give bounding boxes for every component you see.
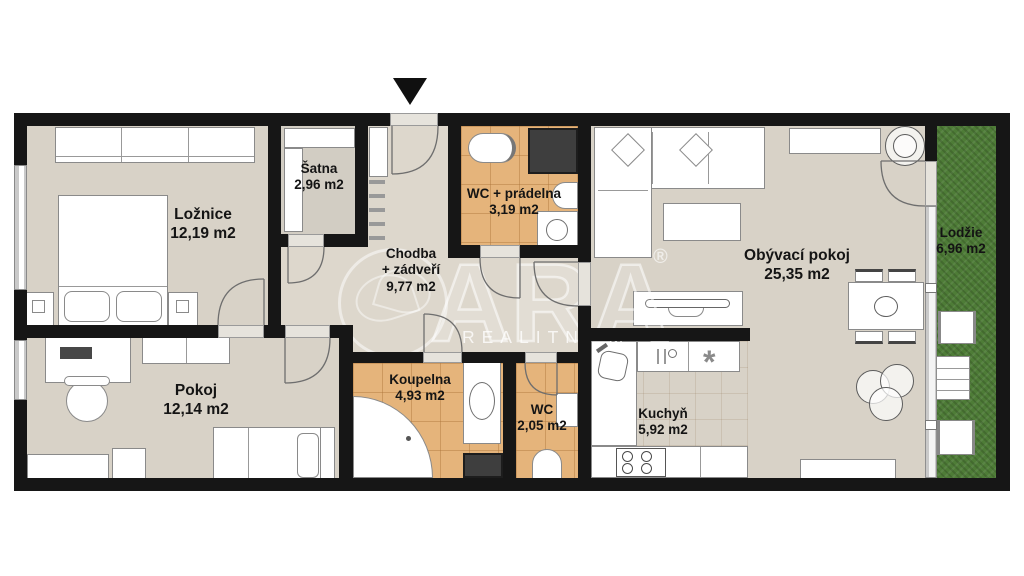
bathtub-faucet-icon	[406, 436, 411, 441]
room-label-wc: WC 2,05 m2	[517, 402, 567, 435]
coat-hook	[369, 194, 385, 198]
cutlery-icon	[664, 349, 666, 364]
wall	[268, 126, 281, 338]
wardrobe	[55, 127, 255, 163]
room-label-satna: Šatna 2,96 m2	[294, 161, 344, 194]
cutlery-icon	[657, 349, 659, 364]
sideboard	[789, 128, 881, 154]
room-name: WC	[517, 402, 567, 418]
room-label-kuchyn: Kuchyň 5,92 m2	[638, 406, 688, 439]
room-name: Lodžie	[936, 225, 986, 241]
room-area: 5,92 m2	[638, 422, 688, 438]
coat-hook	[369, 208, 385, 212]
door-threshold	[525, 352, 557, 363]
room-name: Kuchyň	[638, 406, 688, 422]
coat-hook	[369, 180, 385, 184]
duvet-fold	[248, 428, 249, 483]
wall	[353, 352, 423, 363]
room-name: Koupelna	[389, 372, 451, 388]
bedside-lamp-icon	[32, 300, 45, 313]
utility-shaft	[463, 453, 503, 478]
window-handle	[925, 283, 937, 293]
room-label-pokoj: Pokoj 12,14 m2	[163, 382, 229, 420]
tv	[645, 299, 730, 308]
dining-chair	[888, 331, 916, 344]
window	[14, 340, 27, 400]
coat-hook	[369, 222, 385, 226]
room-area: 2,05 m2	[517, 418, 567, 434]
wall	[462, 352, 525, 363]
wall	[14, 478, 1010, 491]
door-threshold	[288, 234, 324, 247]
wall	[503, 363, 516, 478]
coat-hook	[369, 236, 385, 240]
closet-shelf	[284, 128, 355, 148]
room-label-koupelna: Koupelna 4,93 m2	[389, 372, 451, 405]
room-name: Šatna	[294, 161, 344, 177]
room-area: 12,19 m2	[170, 225, 236, 244]
table-plant	[874, 296, 898, 317]
glass-icon	[668, 349, 677, 358]
bed-headboard	[320, 427, 335, 484]
room-name: + zádveří	[382, 262, 440, 278]
tv-stand	[668, 308, 704, 317]
coffee-table	[663, 203, 741, 241]
sofa-cushion-line	[708, 132, 709, 184]
door-threshold	[480, 245, 520, 258]
entrance-door-threshold	[390, 113, 438, 126]
wall	[578, 341, 591, 478]
door-threshold	[925, 161, 937, 206]
sofa-cushion-line	[652, 132, 653, 184]
plant	[893, 134, 917, 158]
room-name: WC + prádelna	[467, 186, 561, 202]
wall	[355, 126, 368, 247]
floor-plant	[869, 387, 903, 421]
floor-plan: * ARA ® REALITNÍ	[0, 0, 1024, 576]
door-threshold	[423, 352, 462, 363]
hall-cabinet	[369, 127, 388, 177]
fan-icon: *	[703, 346, 715, 378]
dining-chair	[888, 269, 916, 282]
door-threshold	[218, 325, 264, 338]
room-area: 4,93 m2	[389, 388, 451, 404]
counter-divider	[688, 342, 689, 371]
office-chair	[66, 380, 108, 422]
monitor	[60, 347, 92, 359]
room-area: 3,19 m2	[467, 202, 561, 218]
wall	[578, 126, 591, 341]
window-handle	[925, 420, 937, 430]
low-cabinet	[27, 454, 109, 480]
wardrobe-rail	[56, 156, 254, 157]
low-cabinet	[112, 448, 146, 482]
room-label-lodzie: Lodžie 6,96 m2	[936, 225, 986, 258]
room-name: Ložnice	[170, 206, 236, 225]
bed-duvet-line	[59, 286, 167, 287]
room-area: 2,96 m2	[294, 177, 344, 193]
outdoor-chair	[937, 420, 975, 455]
wall	[14, 113, 1010, 126]
room-label-loznice: Ložnice 12,19 m2	[170, 206, 236, 244]
wall	[448, 126, 461, 258]
room-area: 25,35 m2	[744, 266, 850, 285]
wall	[339, 325, 353, 478]
office-chair-back	[64, 376, 110, 386]
pillow	[297, 433, 319, 478]
room-name: Obývací pokoj	[744, 247, 850, 266]
washer-drum	[546, 219, 568, 241]
sofa-cushion-line	[598, 190, 648, 191]
outdoor-chair	[938, 311, 976, 344]
toilet	[468, 133, 516, 163]
loggia-glass-wall	[925, 206, 937, 478]
kitchen-counter-bottom	[591, 446, 748, 478]
wall	[578, 328, 750, 341]
wall	[925, 126, 937, 161]
vanity-basin	[469, 382, 495, 420]
utility-shaft	[528, 128, 578, 174]
counter-divider	[700, 447, 701, 477]
room-area: 9,77 m2	[382, 279, 440, 295]
room-label-chodba: Chodba + zádveří 9,77 m2	[382, 246, 440, 295]
pillow	[116, 291, 162, 322]
entrance-arrow-icon	[393, 78, 427, 105]
window	[14, 165, 27, 290]
room-area: 12,14 m2	[163, 401, 229, 420]
door-threshold	[285, 325, 330, 338]
pillow	[64, 291, 110, 322]
door-threshold	[578, 262, 591, 306]
room-label-wc-pradelna: WC + prádelna 3,19 m2	[467, 186, 561, 219]
dining-chair	[855, 331, 883, 344]
outdoor-table	[932, 356, 970, 400]
room-name: Chodba	[382, 246, 440, 262]
room-area: 6,96 m2	[936, 241, 986, 257]
bedside-lamp-icon	[176, 300, 189, 313]
dining-chair	[855, 269, 883, 282]
wall	[996, 113, 1010, 491]
room-name: Pokoj	[163, 382, 229, 401]
low-sideboard	[800, 459, 896, 480]
room-label-obyvaci-pokoj: Obývací pokoj 25,35 m2	[744, 247, 850, 285]
